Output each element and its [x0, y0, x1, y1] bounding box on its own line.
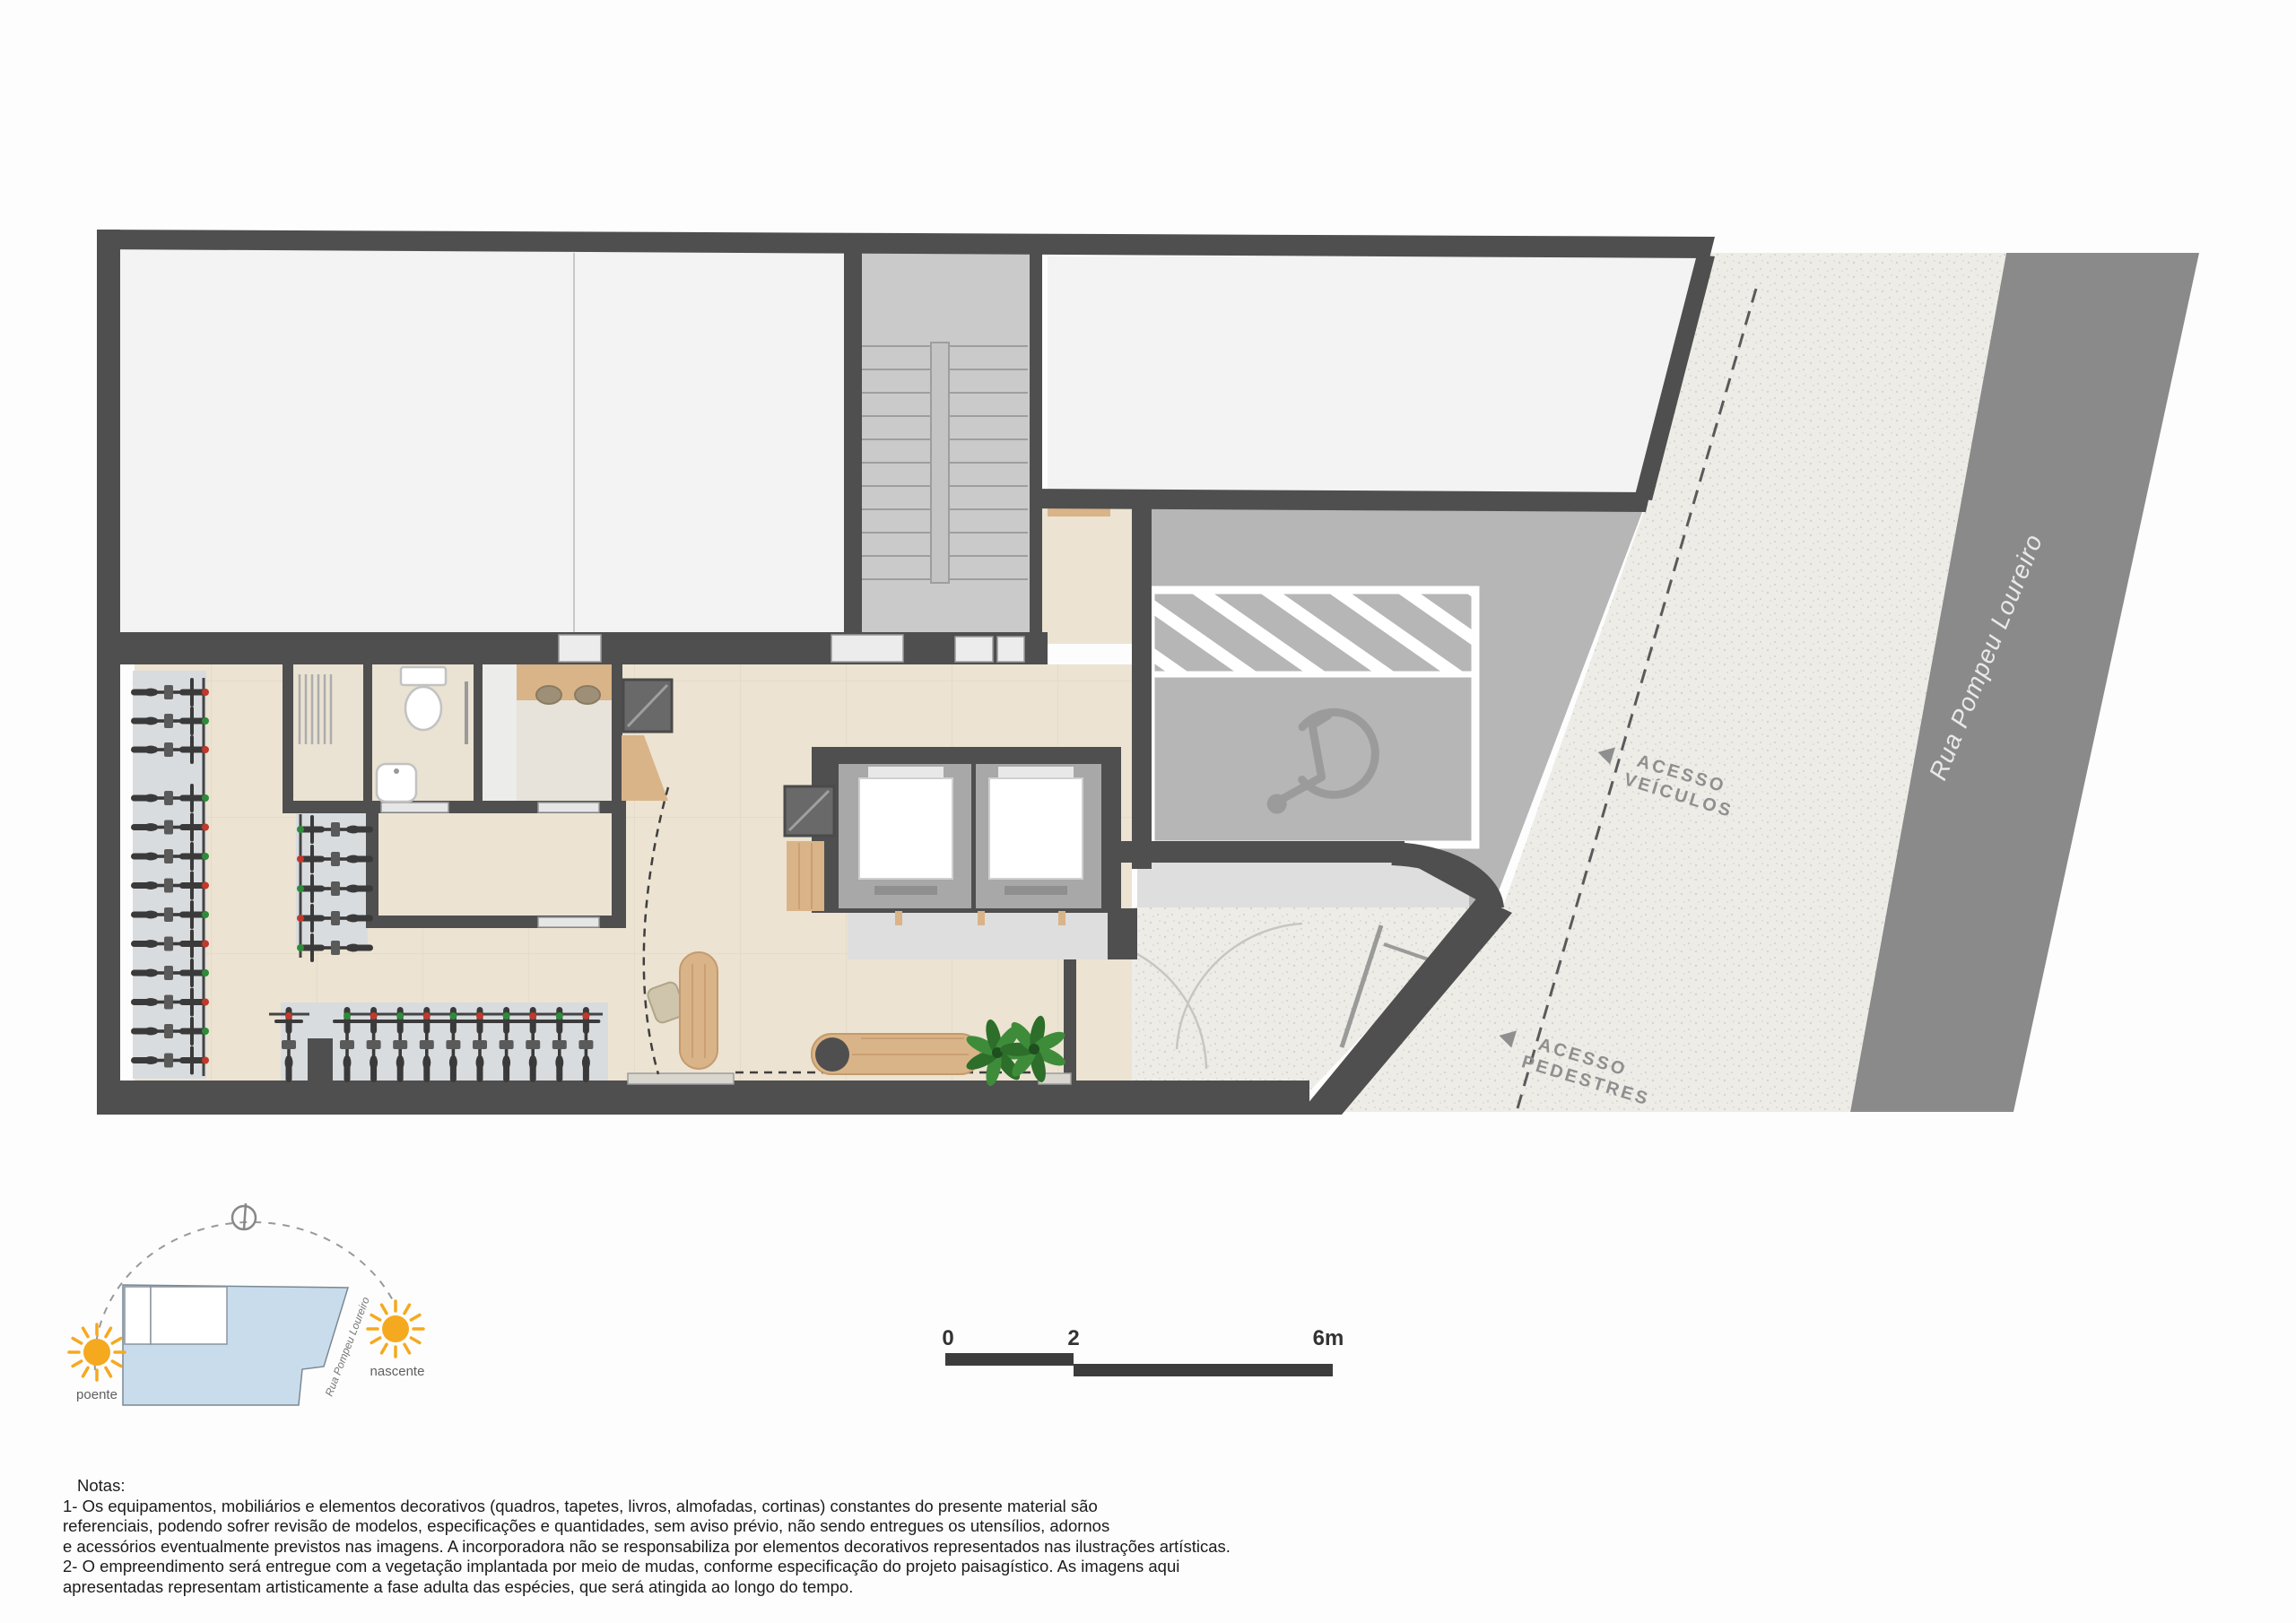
wall-bath-4	[612, 664, 622, 808]
wall-left	[97, 230, 120, 1115]
sliding-door	[538, 917, 599, 927]
sun-icon	[69, 1324, 125, 1380]
wall-elevator-right	[1099, 767, 1121, 910]
rack-accent-dot	[297, 826, 304, 833]
rack-accent-dot	[476, 1012, 483, 1020]
door-threshold	[559, 635, 601, 662]
rack-accent-dot	[556, 1012, 563, 1020]
door-threshold	[831, 635, 903, 662]
sun-ray	[411, 1315, 420, 1321]
rack-accent-dot	[529, 1012, 536, 1020]
elevator-cab	[859, 778, 952, 879]
rack-accent-dot	[202, 999, 209, 1006]
rack-accent-dot	[297, 915, 304, 922]
sun-icon	[368, 1301, 423, 1357]
plant-center	[1029, 1044, 1039, 1055]
side-table	[815, 1037, 849, 1072]
wall-storage-left	[366, 801, 378, 928]
faucet-icon	[394, 768, 399, 774]
rack-accent-dot	[297, 855, 304, 863]
wall-bike-stub	[308, 1038, 333, 1083]
wall-vestibule-top	[1121, 841, 1405, 863]
hall-door-jamb	[1058, 911, 1065, 925]
scale-tick-2: 2	[1067, 1326, 1079, 1350]
rack-accent-dot	[396, 1012, 404, 1020]
wall-bottom	[97, 1081, 1309, 1115]
storage-room-floor	[378, 813, 612, 916]
wall-bath-2	[363, 664, 372, 808]
rack-accent-dot	[202, 689, 209, 696]
elevator-sill	[874, 886, 937, 895]
sliding-door	[538, 803, 599, 812]
wall-stair-left	[844, 247, 862, 644]
shower-room-floor	[293, 664, 363, 801]
notes-block: Notas: 1- Os equipamentos, mobiliários e…	[63, 1476, 1390, 1597]
sun-ray	[83, 1367, 89, 1376]
sun-ray	[404, 1344, 410, 1353]
sun-ray	[382, 1344, 387, 1353]
toilet-bowl-icon	[405, 687, 441, 730]
elevator-2	[976, 764, 1101, 908]
scale-tick-0: 0	[942, 1326, 953, 1350]
wall-storage-right	[612, 801, 626, 928]
wall-lobby-right	[1064, 959, 1076, 1081]
rack-accent-dot	[423, 1012, 430, 1020]
vestibule-floor	[1137, 863, 1469, 907]
rack-accent-dot	[202, 746, 209, 753]
site-inset: poente nascente Rua Pompeu Loureiro	[69, 1203, 424, 1405]
rack-accent-dot	[285, 1012, 292, 1020]
rack-accent-dot	[202, 941, 209, 948]
lobby-sill	[628, 1073, 734, 1084]
sun-ray	[371, 1315, 380, 1321]
door-threshold	[997, 637, 1024, 662]
rack-accent-dot	[297, 885, 304, 892]
rack-accent-dot	[582, 1012, 589, 1020]
notes-line: e acessórios eventualmente previstos nas…	[63, 1537, 1390, 1558]
door-threshold	[955, 637, 993, 662]
sun-ray	[83, 1328, 89, 1337]
corridor-beige	[1042, 502, 1132, 644]
hall-door-jamb	[895, 911, 902, 925]
wall-bath-3	[474, 664, 483, 808]
rack-accent-dot	[202, 824, 209, 831]
rack-accent-dot	[202, 911, 209, 918]
rack-accent-dot	[503, 1012, 510, 1020]
wall-hall-right	[1108, 908, 1137, 959]
floor-plan-canvas: Rua Pompeu Loureiro ACESSO VEÍCULOS ACES…	[0, 0, 2296, 1623]
sun-ray	[73, 1339, 82, 1344]
wall-bath-1	[283, 664, 293, 808]
elevator-1	[839, 764, 971, 908]
rack-accent-dot	[202, 882, 209, 890]
rack-accent-dot	[202, 1028, 209, 1035]
elevator-sill	[1004, 886, 1067, 895]
room-top-right-floor	[1048, 256, 1706, 498]
rack-accent-dot	[202, 1057, 209, 1064]
elevator-door	[868, 767, 944, 777]
scale-tick-6m: 6m	[1313, 1326, 1344, 1350]
wall-elevator-top	[812, 747, 1121, 767]
sun-ray	[411, 1338, 420, 1343]
elevator-door	[998, 767, 1074, 777]
rack-accent-dot	[370, 1012, 378, 1020]
sliding-door	[381, 803, 448, 812]
east-label: nascente	[370, 1364, 425, 1379]
wall-driveway-left	[1132, 492, 1152, 869]
parking-hatch-stripes	[1151, 590, 1475, 674]
sun-ray	[106, 1367, 111, 1376]
sun-ray	[112, 1339, 121, 1344]
elevator-cab	[989, 778, 1083, 879]
north-needle	[244, 1203, 246, 1229]
notes-line: referenciais, podendo sofrer revisão de …	[63, 1516, 1390, 1537]
wall-below-top-right-room	[1030, 489, 1650, 512]
room-top-left-floor	[120, 249, 844, 635]
notes-line: 1- Os equipamentos, mobiliários e elemen…	[63, 1497, 1390, 1517]
rack-accent-dot	[202, 717, 209, 725]
stair-stringer	[931, 343, 949, 583]
scale-segment-1	[945, 1353, 1074, 1366]
rack-accent-dot	[202, 969, 209, 976]
sun-ray	[112, 1361, 121, 1367]
sun-ray	[404, 1305, 410, 1314]
rack-accent-dot	[449, 1012, 457, 1020]
vanity-shower-strip	[483, 664, 517, 801]
rack-accent-dot	[202, 794, 209, 802]
wood-mat	[787, 841, 824, 911]
scale-bar: 0 2 6m	[942, 1326, 1344, 1376]
west-label: poente	[76, 1387, 117, 1402]
wall-stair-right	[1030, 247, 1042, 644]
site-building-block	[151, 1287, 227, 1344]
vanity-basin-icon	[536, 686, 561, 704]
notes-line: apresentadas representam artisticamente …	[63, 1577, 1390, 1598]
vanity-basin-icon	[575, 686, 600, 704]
site-building-block	[125, 1287, 151, 1344]
reception-desk	[680, 952, 717, 1069]
rack-accent-dot	[202, 853, 209, 860]
rack-accent-dot	[297, 944, 304, 951]
sun-ray	[106, 1328, 111, 1337]
sun-ray	[73, 1361, 82, 1367]
sun-core	[83, 1339, 110, 1366]
toilet-tank-icon	[401, 667, 446, 685]
sun-ray	[371, 1338, 380, 1343]
bike-rack-strip-left	[133, 671, 206, 1079]
floor-plan-page: Rua Pompeu Loureiro ACESSO VEÍCULOS ACES…	[0, 0, 2296, 1623]
notes-line: 2- O empreendimento será entregue com a …	[63, 1557, 1390, 1577]
sun-ray	[382, 1305, 387, 1314]
notes-title: Notas:	[77, 1476, 1390, 1497]
rack-accent-dot	[344, 1012, 351, 1020]
hall-door-jamb	[978, 911, 985, 925]
sun-core	[382, 1315, 409, 1342]
scale-segment-2	[1074, 1364, 1333, 1376]
